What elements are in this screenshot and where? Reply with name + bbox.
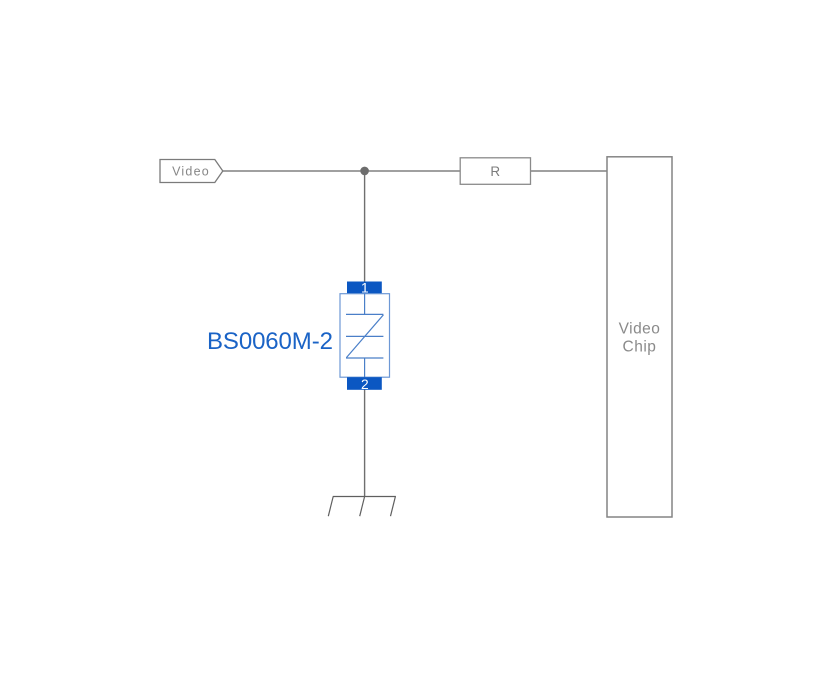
svg-text:2: 2: [361, 377, 369, 392]
svg-text:R: R: [490, 164, 500, 179]
svg-text:Video: Video: [172, 165, 210, 179]
svg-text:Video: Video: [619, 321, 661, 338]
svg-text:1: 1: [361, 281, 369, 296]
svg-text:Chip: Chip: [623, 339, 657, 356]
svg-text:BS0060M-2: BS0060M-2: [207, 328, 333, 355]
